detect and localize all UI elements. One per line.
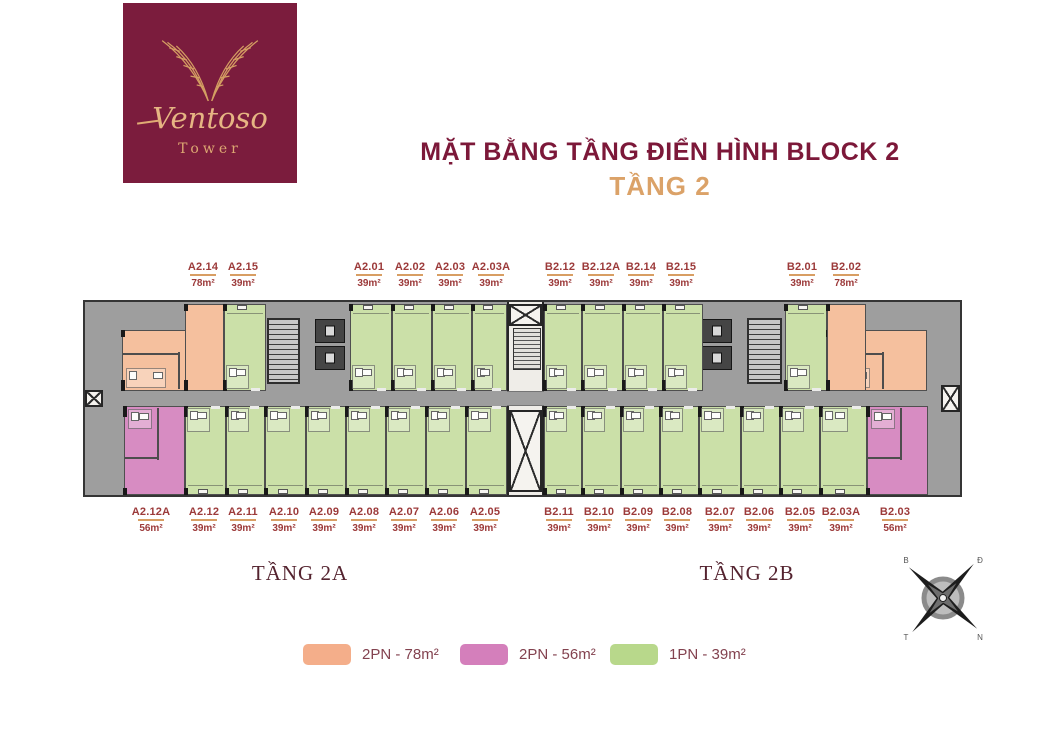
- bdoor-detail: [444, 305, 454, 310]
- unit-A2.12: [185, 406, 226, 495]
- legend-label: 2PN - 56m²: [519, 646, 596, 663]
- bath-detail: [308, 408, 330, 432]
- cdoor-detail: [457, 388, 466, 391]
- balc-detail: [349, 485, 383, 486]
- bath-detail: [187, 408, 210, 432]
- bath-detail: [623, 408, 644, 432]
- unit-B2.05: [780, 406, 820, 495]
- unit-label-B2.03: B2.0356m²: [863, 506, 927, 534]
- bath-detail: [701, 408, 724, 432]
- xbox-icon: [509, 410, 542, 492]
- iwh-detail: [123, 353, 178, 355]
- unit-id: B2.15: [649, 261, 713, 273]
- bdoor-detail: [238, 489, 248, 494]
- unit-rule: [789, 274, 815, 276]
- unit-B2.03: [867, 406, 928, 495]
- unit-B2.07: [699, 406, 741, 495]
- xbox-icon: [509, 304, 542, 326]
- balc-detail: [429, 485, 463, 486]
- balc-detail: [585, 313, 620, 314]
- cdoor-detail: [411, 406, 420, 409]
- bath-detail: [546, 365, 567, 389]
- cdoor-detail: [805, 406, 814, 409]
- unit-area: 56m²: [863, 523, 927, 534]
- balc-detail: [389, 485, 423, 486]
- balc-detail: [823, 485, 864, 486]
- iwh-detail: [868, 457, 900, 459]
- balc-detail: [744, 485, 777, 486]
- elev-icon: [702, 346, 732, 370]
- compass-se-label: N: [977, 633, 983, 642]
- bath-detail: [226, 365, 249, 389]
- cdoor-detail: [251, 388, 260, 391]
- bath-detail: [662, 408, 683, 432]
- unit-B2.12: [544, 304, 582, 391]
- cdoor-detail: [417, 388, 426, 391]
- balc-detail: [309, 485, 343, 486]
- page-subtitle: TẦNG 2: [410, 171, 910, 202]
- balc-detail: [663, 485, 696, 486]
- unit-id: B2.03: [863, 506, 927, 518]
- legend-item-1pn39: 1PN - 39m²: [610, 644, 746, 665]
- bdoor-detail: [594, 489, 604, 494]
- compass-rose: B Đ T N: [893, 548, 993, 648]
- elev-icon: [315, 319, 345, 343]
- unit-B2.10: [582, 406, 621, 495]
- wings-icon: [148, 33, 272, 105]
- unit-A2.11: [226, 406, 265, 495]
- cdoor-detail: [726, 406, 735, 409]
- bath-detail: [126, 368, 166, 388]
- unit-rule: [828, 519, 854, 521]
- bath-detail: [665, 365, 687, 389]
- cdoor-detail: [765, 406, 774, 409]
- unit-A2.10: [265, 406, 306, 495]
- cdoor-detail: [492, 388, 501, 391]
- cdoor-detail: [648, 388, 657, 391]
- unit-A2.07: [386, 406, 426, 495]
- bath-detail: [787, 365, 810, 389]
- unit-rule: [478, 274, 504, 276]
- section-label-2a: TẦNG 2A: [230, 561, 370, 586]
- balc-detail: [626, 313, 660, 314]
- balc-detail: [227, 313, 263, 314]
- unit-B2.06: [741, 406, 780, 495]
- iwv-detail: [882, 352, 884, 389]
- balc-detail: [469, 485, 504, 486]
- bath-detail: [394, 365, 416, 389]
- balc-detail: [395, 313, 429, 314]
- unit-B2.09: [621, 406, 660, 495]
- unit-A2.01: [350, 304, 392, 391]
- brand-subtitle: Tower: [123, 141, 297, 157]
- bath-detail: [267, 408, 290, 432]
- bdoor-detail: [556, 489, 566, 494]
- iwv-detail: [900, 408, 902, 460]
- cdoor-detail: [684, 406, 693, 409]
- balc-detail: [353, 313, 389, 314]
- cdoor-detail: [645, 406, 654, 409]
- elev-icon: [702, 319, 732, 343]
- balc-detail: [666, 313, 700, 314]
- unit-rule: [138, 519, 164, 521]
- floor-plan: [83, 300, 962, 497]
- cdoor-detail: [377, 388, 386, 391]
- legend-label: 1PN - 39m²: [669, 646, 746, 663]
- unit-B2.03A: [820, 406, 867, 495]
- legend-swatch-orange: [303, 644, 351, 665]
- unit-rule: [882, 519, 908, 521]
- unit-area: 39m²: [459, 278, 523, 289]
- unit-label-A2.05: A2.0539m²: [453, 506, 517, 534]
- balc-detail: [788, 313, 824, 314]
- xbox-icon: [941, 385, 960, 412]
- unit-id: A2.05: [453, 506, 517, 518]
- brand-name: Ventoso: [123, 101, 297, 135]
- unit-label-B2.15: B2.1539m²: [649, 261, 713, 289]
- brochure-page: { "logo": { "brand": "Ventoso", "sub": "…: [0, 0, 1050, 742]
- bdoor-detail: [483, 305, 493, 310]
- bdoor-detail: [753, 489, 763, 494]
- cdoor-detail: [812, 388, 821, 391]
- balc-detail: [702, 485, 738, 486]
- cdoor-detail: [688, 388, 697, 391]
- bath-detail: [128, 409, 152, 429]
- unit-A2.02: [392, 304, 432, 391]
- bath-detail: [388, 408, 410, 432]
- bdoor-detail: [835, 489, 845, 494]
- bath-detail: [434, 365, 456, 389]
- balc-detail: [547, 313, 579, 314]
- compass-sw-label: T: [904, 633, 909, 642]
- unit-A2.14: [185, 304, 224, 391]
- bath-detail: [625, 365, 647, 389]
- cdoor-detail: [567, 406, 576, 409]
- bath-detail: [822, 408, 848, 432]
- unit-B2.02: [827, 304, 866, 391]
- compass-ne-label: Đ: [977, 556, 983, 565]
- bath-detail: [584, 365, 607, 389]
- ventoso-logo: Ventoso Tower: [123, 3, 297, 183]
- bdoor-detail: [798, 305, 808, 310]
- unit-A2.03: [432, 304, 472, 391]
- bdoor-detail: [358, 489, 368, 494]
- unit-id: A2.15: [211, 261, 275, 273]
- bdoor-detail: [398, 489, 408, 494]
- unit-A2.06: [426, 406, 466, 495]
- unit-rule: [230, 274, 256, 276]
- legend-swatch-pink: [460, 644, 508, 665]
- cdoor-detail: [567, 388, 576, 391]
- unit-B2.11: [544, 406, 582, 495]
- unit-id: A2.03A: [459, 261, 523, 273]
- xbox-icon: [85, 390, 103, 407]
- unit-rule: [668, 274, 694, 276]
- balc-detail: [268, 485, 303, 486]
- bdoor-detail: [635, 305, 645, 310]
- bdoor-detail: [479, 489, 489, 494]
- unit-area: 78m²: [814, 278, 878, 289]
- bath-detail: [348, 408, 370, 432]
- unit-A2.09: [306, 406, 346, 495]
- bdoor-detail: [198, 489, 208, 494]
- cdoor-detail: [211, 406, 220, 409]
- bdoor-detail: [404, 305, 414, 310]
- iwh-detail: [125, 457, 157, 459]
- unit-id: B2.02: [814, 261, 878, 273]
- bdoor-detail: [672, 489, 682, 494]
- balc-detail: [783, 485, 817, 486]
- bdoor-detail: [363, 305, 373, 310]
- bdoor-detail: [438, 489, 448, 494]
- bdoor-detail: [556, 305, 566, 310]
- section-label-2b: TẦNG 2B: [677, 561, 817, 586]
- stair-icon: [747, 318, 782, 384]
- cdoor-detail: [608, 388, 617, 391]
- bath-detail: [584, 408, 605, 432]
- bath-detail: [468, 408, 491, 432]
- unit-B2.08: [660, 406, 699, 495]
- balc-detail: [475, 313, 504, 314]
- unit-area: 39m²: [211, 278, 275, 289]
- unit-label-A2.15: A2.1539m²: [211, 261, 275, 289]
- unit-area: 39m²: [649, 278, 713, 289]
- iwv-detail: [157, 408, 159, 460]
- bath-detail: [871, 409, 895, 429]
- legend-item-2pn56: 2PN - 56m²: [460, 644, 596, 665]
- bdoor-detail: [633, 489, 643, 494]
- page-title: MẶT BẰNG TẦNG ĐIỂN HÌNH BLOCK 2: [410, 138, 910, 167]
- balc-detail: [624, 485, 657, 486]
- unit-A2.05: [466, 406, 507, 495]
- bath-detail: [782, 408, 804, 432]
- unit-A2.12A: [124, 406, 185, 495]
- bath-detail: [352, 365, 375, 389]
- unit-area: 39m²: [453, 523, 517, 534]
- unit-B2.12A: [582, 304, 623, 391]
- unit-A2.15: [224, 304, 266, 391]
- unit-B2.01: [785, 304, 827, 391]
- cdoor-detail: [331, 406, 340, 409]
- compass-icon: B Đ T N: [893, 548, 993, 648]
- unit-rule: [833, 274, 859, 276]
- balc-detail: [435, 313, 469, 314]
- legend-swatch-green: [610, 644, 658, 665]
- unit-label-A2.03A: A2.03A39m²: [459, 261, 523, 289]
- cdoor-detail: [250, 406, 259, 409]
- cdoor-detail: [606, 406, 615, 409]
- stair-icon: [267, 318, 300, 384]
- compass-nw-label: B: [903, 556, 908, 565]
- bdoor-detail: [792, 489, 802, 494]
- bath-detail: [228, 408, 249, 432]
- balc-detail: [547, 485, 579, 486]
- bdoor-detail: [237, 305, 247, 310]
- unit-label-B2.02: B2.0278m²: [814, 261, 878, 289]
- bath-detail: [546, 408, 567, 432]
- bdoor-detail: [712, 489, 722, 494]
- cdoor-detail: [451, 406, 460, 409]
- unit-A2.08: [346, 406, 386, 495]
- unit-rule: [472, 519, 498, 521]
- bdoor-detail: [278, 489, 288, 494]
- corebar-icon: [507, 391, 544, 406]
- legend-label: 2PN - 78m²: [362, 646, 439, 663]
- cdoor-detail: [371, 406, 380, 409]
- bath-detail: [743, 408, 764, 432]
- unit-B2.15: [663, 304, 703, 391]
- elev-icon: [315, 346, 345, 370]
- cdoor-detail: [492, 406, 501, 409]
- bath-detail: [428, 408, 450, 432]
- bath-detail: [474, 365, 493, 389]
- bdoor-detail: [675, 305, 685, 310]
- cdoor-detail: [852, 406, 861, 409]
- balc-detail: [585, 485, 618, 486]
- legend-item-2pn78: 2PN - 78m²: [303, 644, 439, 665]
- util-icon: [513, 328, 541, 370]
- balc-detail: [188, 485, 223, 486]
- bdoor-detail: [595, 305, 605, 310]
- unit-rule: [664, 519, 690, 521]
- iwv-detail: [178, 352, 180, 389]
- bdoor-detail: [318, 489, 328, 494]
- balc-detail: [229, 485, 262, 486]
- unit-B2.14: [623, 304, 663, 391]
- unit-A2.03A: [472, 304, 507, 391]
- cdoor-detail: [291, 406, 300, 409]
